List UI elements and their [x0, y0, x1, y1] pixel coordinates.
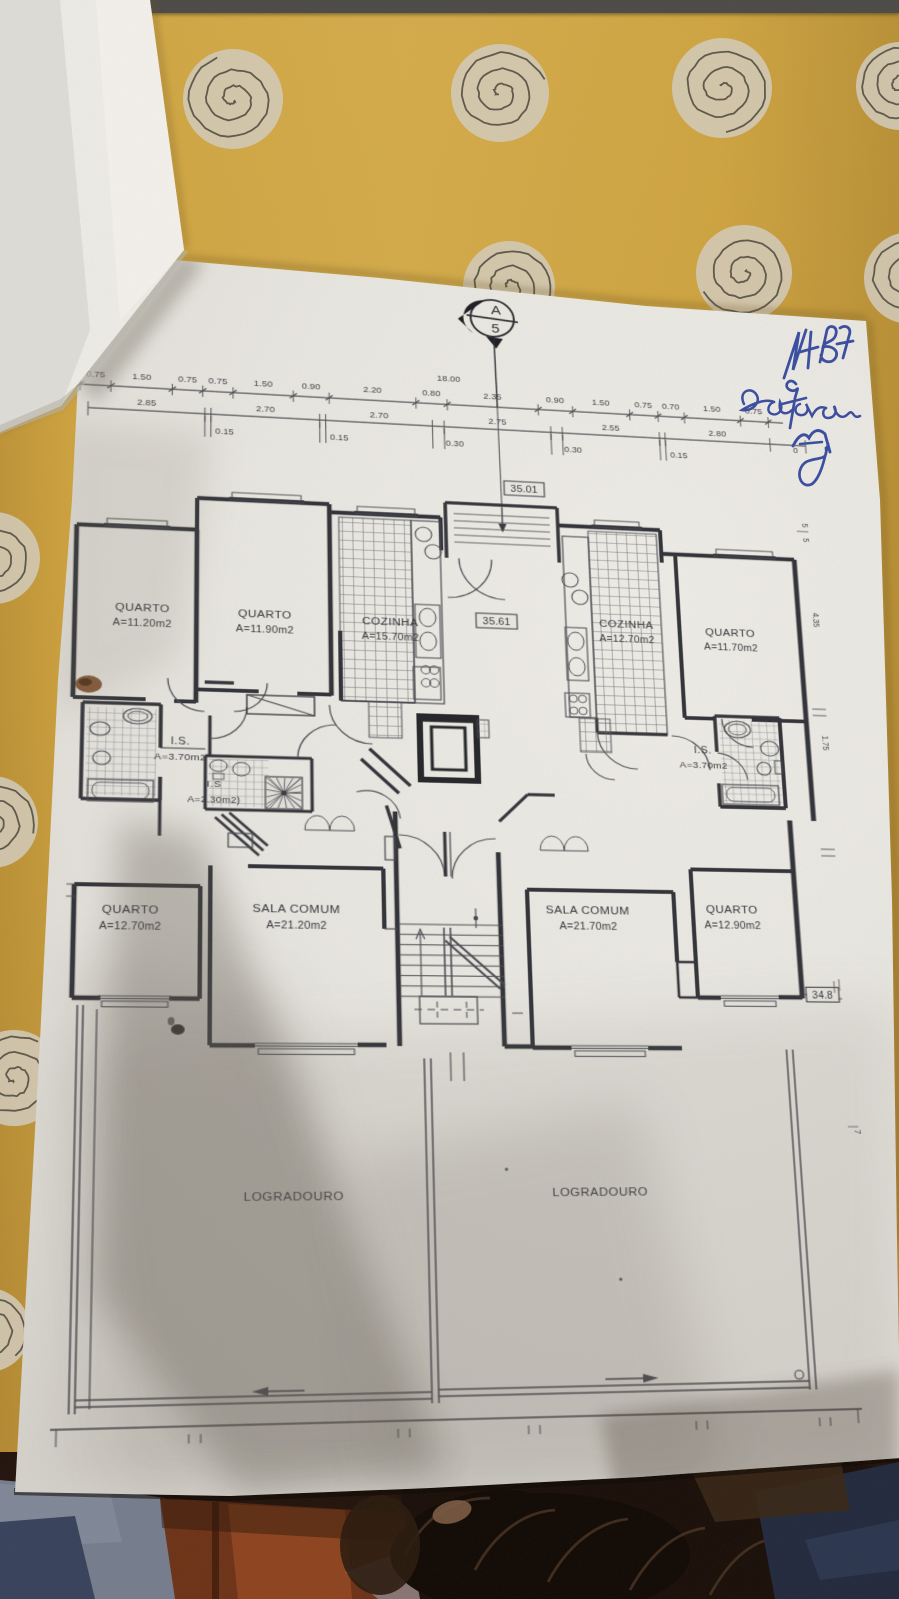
svg-text:0.90: 0.90 — [546, 395, 564, 405]
svg-text:0.80: 0.80 — [422, 388, 441, 398]
svg-text:A=2.30m2): A=2.30m2) — [187, 794, 240, 806]
svg-text:QUARTO: QUARTO — [705, 627, 756, 640]
svg-text:34.8: 34.8 — [812, 990, 834, 1002]
svg-text:35.01: 35.01 — [510, 484, 538, 496]
svg-text:I.S.: I.S. — [171, 736, 190, 748]
svg-text:SALA COMUM: SALA COMUM — [253, 902, 341, 916]
svg-text:0.75: 0.75 — [86, 369, 106, 379]
svg-text:A=11.90m2: A=11.90m2 — [236, 624, 294, 637]
svg-text:2.20: 2.20 — [363, 385, 382, 395]
svg-text:1.50: 1.50 — [254, 378, 273, 388]
svg-text:35.61: 35.61 — [483, 616, 512, 628]
svg-text:LOGRADOURO: LOGRADOURO — [244, 1190, 345, 1204]
svg-text:0.90: 0.90 — [302, 381, 321, 391]
svg-text:1.50: 1.50 — [592, 398, 610, 408]
svg-text:A=12.90m2: A=12.90m2 — [704, 920, 761, 932]
svg-text:0.15: 0.15 — [215, 426, 234, 436]
svg-text:0.70: 0.70 — [662, 402, 680, 412]
svg-text:2.85: 2.85 — [137, 397, 156, 407]
svg-text:0.30: 0.30 — [446, 438, 464, 448]
svg-text:2.70: 2.70 — [256, 404, 275, 414]
svg-text:0.75: 0.75 — [208, 376, 227, 386]
svg-text:A=12.70m2: A=12.70m2 — [599, 634, 655, 647]
svg-text:A=15.70m2: A=15.70m2 — [362, 631, 420, 644]
svg-text:1.75: 1.75 — [820, 735, 831, 751]
svg-text:QUARTO: QUARTO — [238, 608, 292, 622]
svg-text:2.70: 2.70 — [370, 410, 389, 420]
svg-text:A=21.20m2: A=21.20m2 — [266, 920, 327, 932]
svg-text:I.S: I.S — [207, 778, 222, 789]
svg-text:0.75: 0.75 — [178, 374, 197, 384]
svg-text:2.55: 2.55 — [602, 423, 620, 433]
svg-text:0.75: 0.75 — [745, 406, 763, 416]
svg-text:0.30: 0.30 — [564, 445, 582, 455]
svg-text:QUARTO: QUARTO — [102, 903, 159, 917]
svg-text:1.50: 1.50 — [703, 404, 721, 414]
svg-text:A=12.70m2: A=12.70m2 — [99, 920, 162, 933]
svg-text:QUARTO: QUARTO — [706, 904, 759, 917]
svg-text:5: 5 — [800, 523, 810, 528]
svg-text:I.S.: I.S. — [694, 745, 712, 756]
svg-text:A=11.20m2: A=11.20m2 — [113, 617, 172, 630]
svg-text:5: 5 — [491, 322, 500, 337]
svg-text:COZINHA: COZINHA — [599, 618, 654, 632]
svg-text:A=21.70m2: A=21.70m2 — [559, 921, 617, 933]
svg-text:2.80: 2.80 — [708, 429, 726, 439]
svg-text:COZINHA: COZINHA — [362, 615, 419, 629]
svg-text:0.75: 0.75 — [634, 400, 652, 410]
svg-text:A: A — [491, 303, 502, 318]
svg-text:0: 0 — [793, 446, 799, 455]
svg-text:18.00: 18.00 — [437, 373, 461, 383]
svg-text:A=11.70m2: A=11.70m2 — [704, 642, 758, 654]
svg-text:0.15: 0.15 — [330, 432, 349, 442]
svg-text:0.15: 0.15 — [670, 450, 688, 460]
svg-text:A=3.70m2: A=3.70m2 — [679, 760, 727, 771]
svg-text:2.35: 2.35 — [483, 391, 502, 401]
svg-text:7: 7 — [852, 1129, 862, 1134]
svg-text:1.50: 1.50 — [132, 372, 151, 382]
svg-text:5: 5 — [801, 538, 811, 543]
svg-text:SALA COMUM: SALA COMUM — [546, 904, 630, 918]
svg-text:QUARTO: QUARTO — [115, 601, 170, 615]
svg-text:LOGRADOURO: LOGRADOURO — [552, 1186, 648, 1200]
svg-text:4.35: 4.35 — [811, 613, 821, 628]
svg-text:A=3.70m2: A=3.70m2 — [154, 751, 206, 763]
